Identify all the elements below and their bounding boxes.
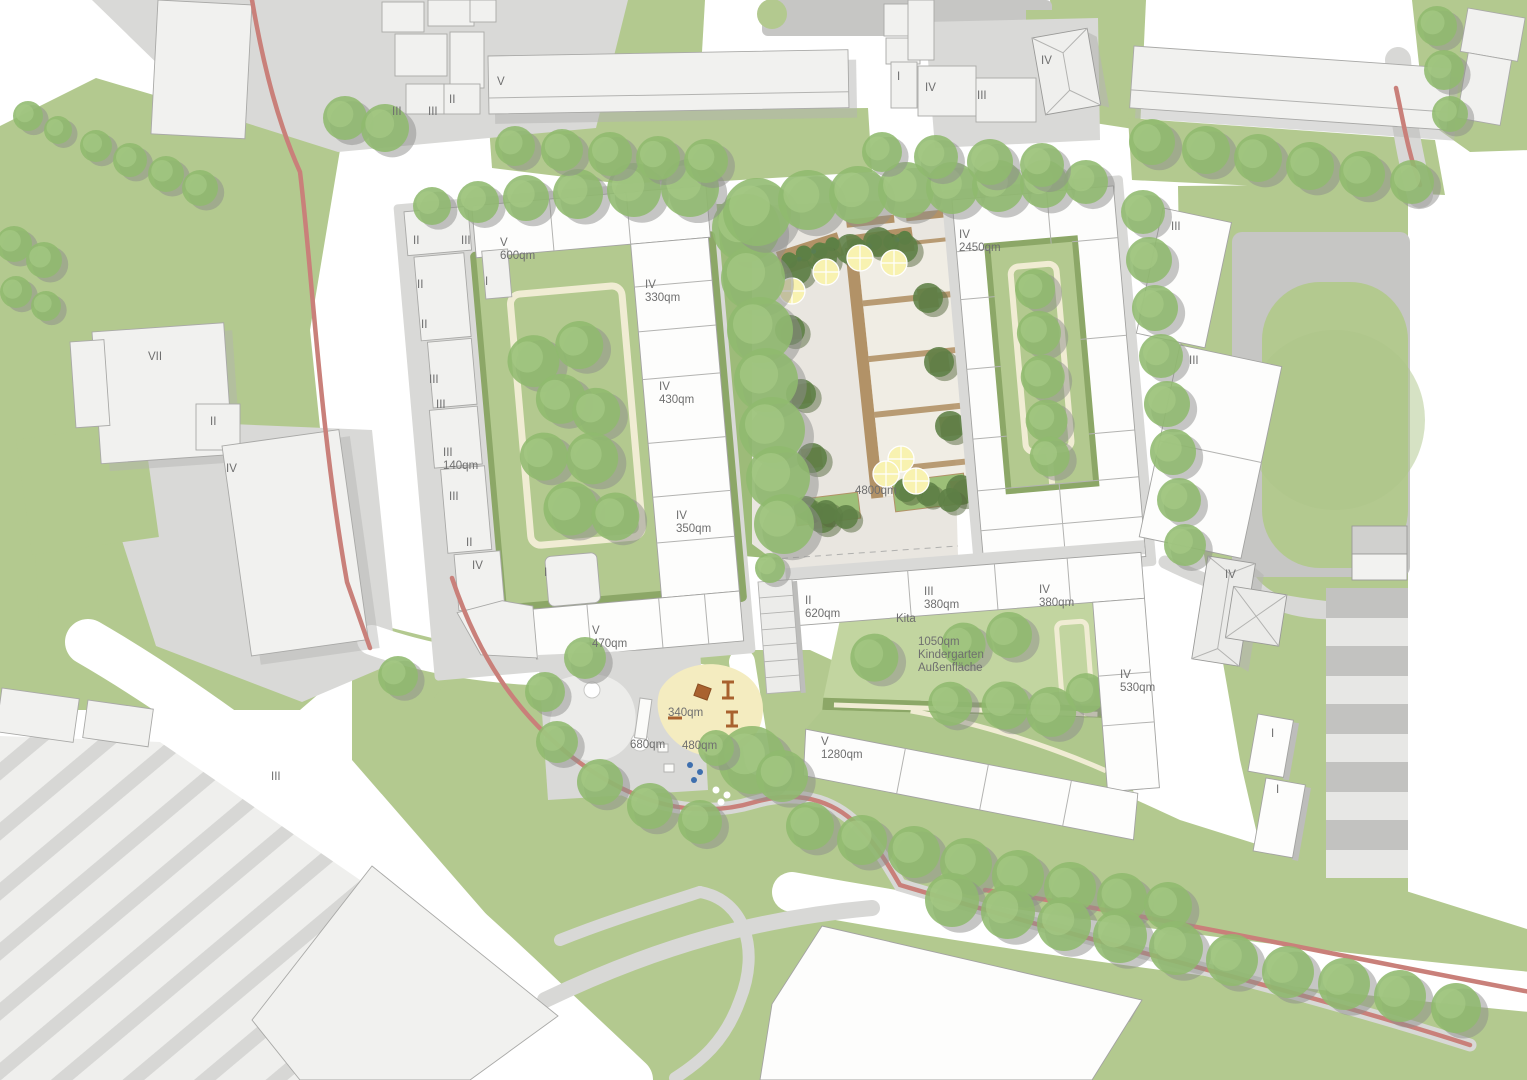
site-plan-page: VIIIIIIIIIIVIIIIVIIIIIIVIIIIIVIIIIIIIIV6… xyxy=(0,0,1527,1080)
building-v-long xyxy=(488,50,857,124)
map-label: I xyxy=(485,276,488,288)
map-label: III xyxy=(461,235,471,247)
map-label: III xyxy=(436,399,446,411)
parking-lane xyxy=(1326,792,1408,820)
map-label: 1050qm xyxy=(918,636,960,648)
map-label: III xyxy=(392,106,402,118)
parking-stall-row xyxy=(1326,646,1408,676)
parking-lane xyxy=(1326,618,1408,646)
map-label: II xyxy=(421,319,427,331)
map-label: V xyxy=(592,625,600,637)
map-label: VII xyxy=(148,351,162,363)
map-label: 480qm xyxy=(682,740,717,752)
map-label: II xyxy=(417,279,423,291)
map-label: V xyxy=(821,736,829,748)
map-label: III xyxy=(977,90,987,102)
tree-icon xyxy=(938,488,962,512)
map-label: I xyxy=(544,567,547,579)
map-label: 470qm xyxy=(592,638,627,650)
map-label: Kita xyxy=(896,613,916,625)
map-label: 1280qm xyxy=(821,749,863,761)
map-label: 620qm xyxy=(805,608,840,620)
map-label: V xyxy=(500,237,508,249)
parking-lane xyxy=(1326,734,1408,762)
parking-lane xyxy=(1326,850,1408,878)
map-label: 4800qm xyxy=(855,485,897,497)
map-label: IV xyxy=(1120,669,1131,681)
map-label: IV xyxy=(659,381,670,393)
map-label: II xyxy=(805,595,811,607)
map-label: II xyxy=(210,416,216,428)
tree-icon xyxy=(834,505,858,529)
tree-icon xyxy=(935,411,965,441)
map-label: I xyxy=(897,71,900,83)
block-northwest xyxy=(393,177,755,681)
parking-rows xyxy=(1326,588,1408,878)
parking-stall-row xyxy=(1326,588,1408,618)
map-label: III xyxy=(1171,221,1181,233)
map-label: 530qm xyxy=(1120,682,1155,694)
building-i-courtyard xyxy=(545,552,601,606)
map-label: 600qm xyxy=(500,250,535,262)
map-label: II xyxy=(466,537,472,549)
map-label: II xyxy=(413,235,419,247)
map-label: 330qm xyxy=(645,292,680,304)
map-label: III xyxy=(1189,355,1199,367)
map-label: IV xyxy=(1225,569,1236,581)
map-label: III xyxy=(443,447,453,459)
map-label: 2450qm xyxy=(959,242,1001,254)
parking-stall-row xyxy=(1326,704,1408,734)
parking-stall-row xyxy=(1326,820,1408,850)
parking-lane xyxy=(1326,676,1408,704)
map-label: III xyxy=(924,586,934,598)
map-label: 380qm xyxy=(1039,597,1074,609)
map-label: III xyxy=(429,374,439,386)
map-label: IV xyxy=(676,510,687,522)
block-east xyxy=(941,175,1156,581)
map-label: I xyxy=(1271,728,1274,740)
building-i-top xyxy=(891,62,917,108)
map-label: II xyxy=(449,94,455,106)
map-label: IV xyxy=(472,560,483,572)
map-label: IV xyxy=(1041,55,1052,67)
map-label: IV xyxy=(226,463,237,475)
map-label: Außenfläche xyxy=(918,662,983,674)
building-ii-left xyxy=(196,404,240,450)
tree-icon xyxy=(924,347,954,377)
parking-stall-row xyxy=(1326,762,1408,792)
map-label: III xyxy=(271,771,281,783)
map-label: 430qm xyxy=(659,394,694,406)
site-plan-drawing: VIIIIIIIIIIVIIIIVIIIIIIVIIIIIVIIIIIIIIV6… xyxy=(0,0,1527,1080)
tree-icon xyxy=(913,283,943,313)
map-label: IV xyxy=(959,229,970,241)
map-label: V xyxy=(497,76,505,88)
map-label: I xyxy=(1276,784,1279,796)
map-label: IV xyxy=(1039,584,1050,596)
map-label: III xyxy=(428,106,438,118)
map-label: IV xyxy=(925,82,936,94)
map-label: 680qm xyxy=(630,739,665,751)
map-label: 350qm xyxy=(676,523,711,535)
map-label: Kindergarten xyxy=(918,649,984,661)
map-label: IV xyxy=(645,279,656,291)
map-label: 380qm xyxy=(924,599,959,611)
map-label: 340qm xyxy=(668,707,703,719)
map-label: 140qm xyxy=(443,460,478,472)
map-label: III xyxy=(449,491,459,503)
